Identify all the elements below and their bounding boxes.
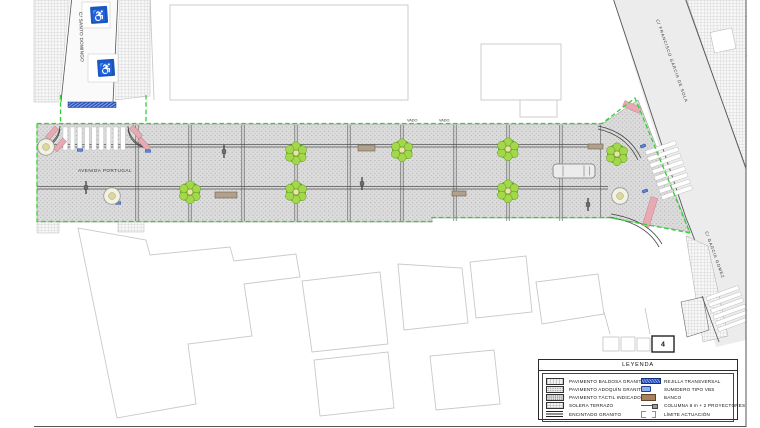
encintado-swatch-icon <box>546 411 563 417</box>
sumidero-swatch-icon <box>641 386 651 392</box>
solera-swatch-icon <box>546 402 564 409</box>
legend-item: SUMIDERO TIPO VBS <box>641 385 745 393</box>
banco-swatch-icon <box>641 394 656 401</box>
limite-swatch-icon <box>641 411 656 418</box>
legend-item: BANCO <box>641 394 745 402</box>
legend-item-label: PAVIMENTO TÁCTIL INDICADOR <box>569 395 644 400</box>
drain-icon <box>145 150 150 153</box>
legend-item: ENCINTADO GRANITO <box>546 410 641 418</box>
bench <box>452 191 466 196</box>
columna-swatch-icon <box>641 403 659 408</box>
legend-item-label: BANCO <box>664 395 681 400</box>
legend-item: LÍMITE ACTUACIÓN <box>641 410 745 418</box>
legend-item: PAVIMENTO BALDOSA GRANITO <box>546 377 641 385</box>
legend-item-label: COLUMNA 8 m + 2 PROYECTORES <box>664 403 745 408</box>
baldosa-swatch-icon <box>546 378 564 385</box>
legend-item-label: SUMIDERO TIPO VBS <box>664 387 715 392</box>
adoquin-swatch-icon <box>546 386 564 393</box>
rejilla-swatch-icon <box>641 378 661 385</box>
legend-item-label: ENCINTADO GRANITO <box>569 412 621 417</box>
legend-item-label: PAVIMENTO BALDOSA GRANITO <box>569 379 645 384</box>
legend-item-label: REJILLA TRANSVERSAL <box>664 379 721 384</box>
bench <box>358 145 375 151</box>
legend: LEYENDA PAVIMENTO BALDOSA GRANITO PAVIME… <box>538 359 738 420</box>
legend-item-label: LÍMITE ACTUACIÓN <box>664 412 710 417</box>
detail-number: 4 <box>661 342 665 349</box>
vado-label: VADO <box>439 119 450 123</box>
legend-item: COLUMNA 8 m + 2 PROYECTORES <box>641 402 745 410</box>
svg-text:♿: ♿ <box>91 8 107 23</box>
transverse-grille <box>68 102 116 108</box>
zebra-crossing-west <box>63 127 125 150</box>
legend-item-label: PAVIMENTO ADOQUÍN GRANITO <box>569 387 645 392</box>
drain-icon <box>77 149 82 152</box>
car-icon <box>553 164 595 178</box>
handicap-parking-icon: ♿ <box>90 6 108 24</box>
detail-reference: 4 <box>603 336 674 352</box>
plan-sheet: ♿ ♿ C/ SANTO DOMINGO <box>0 0 760 428</box>
legend-item: SOLERA TERRAZO <box>546 402 641 410</box>
svg-text:♿: ♿ <box>98 61 114 76</box>
tree-pit-icon <box>104 188 121 205</box>
tactil-swatch-icon <box>546 394 564 401</box>
bench <box>588 144 603 149</box>
vado-label: VADO <box>407 119 418 123</box>
legend-item-label: SOLERA TERRAZO <box>569 403 613 408</box>
tree-pit-icon <box>38 139 55 156</box>
legend-body: PAVIMENTO BALDOSA GRANITO PAVIMENTO ADOQ… <box>542 373 734 422</box>
legend-item: PAVIMENTO ADOQUÍN GRANITO <box>546 385 641 393</box>
legend-item: REJILLA TRANSVERSAL <box>641 377 745 385</box>
legend-title: LEYENDA <box>539 360 737 371</box>
handicap-parking-icon: ♿ <box>97 59 115 77</box>
north-street: ♿ ♿ C/ SANTO DOMINGO <box>34 0 150 108</box>
bench <box>215 192 237 198</box>
tree-pit-icon <box>612 188 629 205</box>
street-label-avenue: AVENIDA PORTUGAL <box>78 168 132 173</box>
legend-item: PAVIMENTO TÁCTIL INDICADOR <box>546 394 641 402</box>
